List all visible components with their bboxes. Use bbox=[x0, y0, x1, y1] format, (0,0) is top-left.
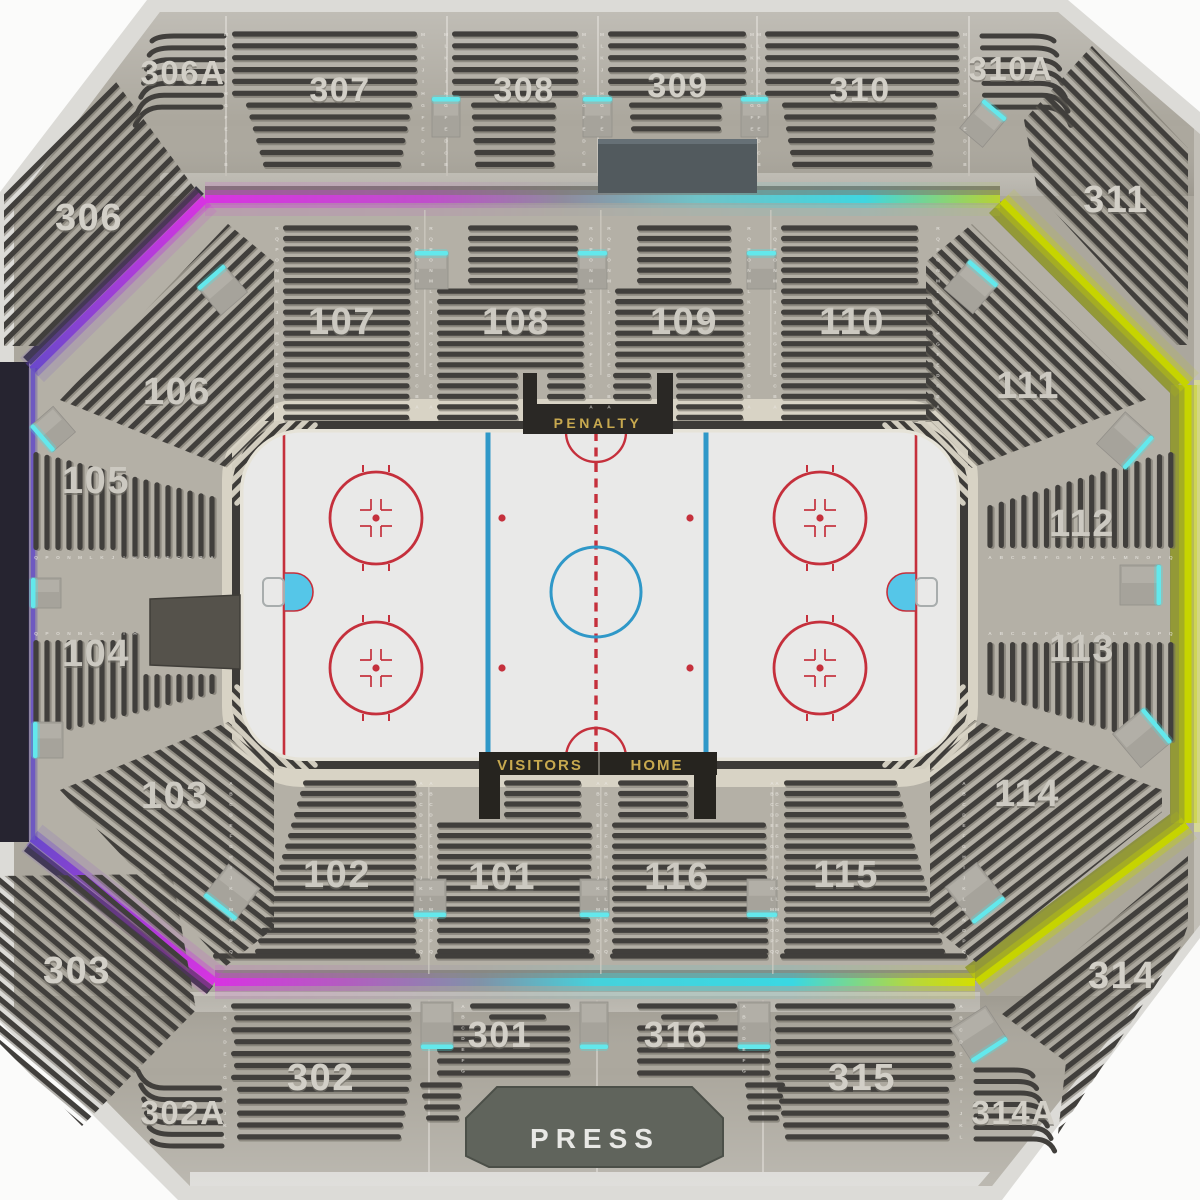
svg-text:N: N bbox=[429, 918, 433, 924]
svg-text:J: J bbox=[605, 876, 608, 882]
svg-text:C: C bbox=[775, 802, 779, 808]
svg-text:F: F bbox=[225, 115, 228, 121]
svg-text:B: B bbox=[596, 791, 600, 797]
svg-text:Q: Q bbox=[775, 949, 779, 955]
svg-text:Q: Q bbox=[429, 949, 433, 955]
svg-text:R: R bbox=[589, 226, 593, 232]
svg-text:O: O bbox=[589, 257, 593, 263]
svg-text:G: G bbox=[275, 342, 279, 348]
svg-text:G: G bbox=[600, 103, 604, 109]
svg-text:VISITORS: VISITORS bbox=[497, 757, 583, 774]
svg-text:Q: Q bbox=[589, 236, 593, 242]
svg-text:B: B bbox=[963, 162, 967, 168]
svg-text:C: C bbox=[604, 802, 608, 808]
svg-text:D: D bbox=[421, 139, 425, 145]
svg-text:L: L bbox=[751, 44, 754, 50]
svg-text:M: M bbox=[775, 907, 779, 913]
svg-text:D: D bbox=[1022, 555, 1026, 561]
svg-text:L: L bbox=[420, 897, 423, 903]
svg-text:G: G bbox=[959, 1075, 963, 1081]
svg-text:O: O bbox=[56, 555, 60, 561]
svg-text:G: G bbox=[589, 342, 593, 348]
svg-text:B: B bbox=[229, 791, 233, 797]
svg-text:105: 105 bbox=[62, 460, 130, 502]
svg-text:306: 306 bbox=[55, 197, 123, 239]
svg-text:C: C bbox=[419, 802, 423, 808]
svg-text:B: B bbox=[275, 394, 279, 400]
svg-text:O: O bbox=[747, 257, 751, 263]
svg-text:O: O bbox=[419, 928, 423, 934]
svg-text:G: G bbox=[747, 342, 751, 348]
svg-text:O: O bbox=[773, 257, 777, 263]
svg-text:315: 315 bbox=[828, 1057, 896, 1099]
svg-text:G: G bbox=[444, 103, 448, 109]
svg-text:L: L bbox=[776, 897, 779, 903]
svg-text:F: F bbox=[608, 352, 611, 358]
svg-text:J: J bbox=[748, 310, 751, 316]
svg-text:C: C bbox=[770, 802, 774, 808]
svg-text:Q: Q bbox=[607, 236, 611, 242]
svg-text:O: O bbox=[775, 928, 779, 934]
svg-text:Q: Q bbox=[604, 949, 608, 955]
svg-text:H: H bbox=[444, 91, 448, 97]
svg-text:L: L bbox=[430, 897, 433, 903]
svg-text:L: L bbox=[964, 44, 967, 50]
svg-text:D: D bbox=[604, 812, 608, 818]
svg-text:M: M bbox=[770, 907, 774, 913]
svg-text:D: D bbox=[742, 1036, 746, 1042]
svg-text:G: G bbox=[750, 103, 754, 109]
svg-text:103: 103 bbox=[141, 775, 209, 817]
svg-text:H: H bbox=[582, 91, 586, 97]
svg-text:C: C bbox=[461, 1025, 465, 1031]
svg-text:R: R bbox=[747, 226, 751, 232]
svg-text:M: M bbox=[275, 278, 279, 284]
svg-text:B: B bbox=[936, 394, 940, 400]
svg-text:C: C bbox=[742, 1025, 746, 1031]
svg-text:G: G bbox=[415, 342, 419, 348]
svg-text:L: L bbox=[230, 897, 233, 903]
svg-text:112: 112 bbox=[1049, 503, 1115, 545]
svg-text:J: J bbox=[774, 310, 777, 316]
svg-text:H: H bbox=[133, 555, 137, 561]
svg-text:B: B bbox=[742, 1015, 746, 1021]
svg-text:N: N bbox=[936, 268, 940, 274]
svg-text:D: D bbox=[223, 1040, 227, 1046]
svg-text:A: A bbox=[770, 781, 774, 787]
svg-text:Q: Q bbox=[34, 555, 38, 561]
svg-text:J: J bbox=[771, 876, 774, 882]
svg-text:113: 113 bbox=[1049, 628, 1115, 670]
svg-text:F: F bbox=[416, 352, 419, 358]
svg-text:D: D bbox=[444, 139, 448, 145]
svg-text:M: M bbox=[773, 278, 777, 284]
svg-text:H: H bbox=[773, 331, 777, 337]
svg-text:O: O bbox=[604, 928, 608, 934]
svg-text:D: D bbox=[936, 373, 940, 379]
svg-text:G: G bbox=[582, 103, 586, 109]
svg-text:B: B bbox=[770, 791, 774, 797]
svg-text:B: B bbox=[773, 394, 777, 400]
svg-text:K: K bbox=[770, 886, 774, 892]
svg-text:Q: Q bbox=[429, 236, 433, 242]
svg-text:G: G bbox=[773, 342, 777, 348]
svg-text:K: K bbox=[100, 555, 104, 561]
svg-text:109: 109 bbox=[650, 301, 718, 343]
svg-text:J: J bbox=[445, 67, 448, 73]
svg-text:311: 311 bbox=[1083, 179, 1149, 221]
svg-text:310A: 310A bbox=[969, 50, 1054, 87]
svg-text:Q: Q bbox=[747, 236, 751, 242]
svg-text:A: A bbox=[415, 405, 419, 411]
svg-text:K: K bbox=[275, 300, 279, 306]
svg-text:G: G bbox=[461, 1069, 465, 1075]
svg-text:J: J bbox=[758, 67, 761, 73]
svg-text:B: B bbox=[962, 791, 966, 797]
svg-text:K: K bbox=[936, 300, 940, 306]
svg-text:A: A bbox=[596, 781, 600, 787]
svg-text:C: C bbox=[1011, 631, 1015, 637]
svg-text:D: D bbox=[747, 373, 751, 379]
svg-text:H: H bbox=[421, 91, 425, 97]
svg-text:O: O bbox=[229, 928, 233, 934]
svg-text:307: 307 bbox=[309, 71, 370, 109]
svg-text:101: 101 bbox=[468, 856, 536, 898]
svg-text:F: F bbox=[776, 833, 779, 839]
svg-text:H: H bbox=[747, 331, 751, 337]
svg-text:N: N bbox=[429, 268, 433, 274]
svg-text:M: M bbox=[1124, 631, 1128, 637]
svg-text:J: J bbox=[751, 67, 754, 73]
svg-text:G: G bbox=[770, 844, 774, 850]
svg-text:M: M bbox=[757, 32, 761, 38]
svg-text:D: D bbox=[582, 139, 586, 145]
svg-text:R: R bbox=[936, 226, 940, 232]
svg-text:A: A bbox=[461, 1004, 465, 1010]
svg-text:H: H bbox=[429, 331, 433, 337]
svg-text:M: M bbox=[415, 278, 419, 284]
svg-text:Q: Q bbox=[773, 236, 777, 242]
svg-text:H: H bbox=[959, 1087, 963, 1093]
svg-text:R: R bbox=[415, 226, 419, 232]
svg-text:L: L bbox=[416, 289, 419, 295]
svg-text:K: K bbox=[589, 300, 593, 306]
svg-text:C: C bbox=[747, 384, 751, 390]
svg-text:G: G bbox=[421, 103, 425, 109]
svg-text:F: F bbox=[597, 833, 600, 839]
svg-text:G: G bbox=[419, 844, 423, 850]
svg-text:A: A bbox=[419, 781, 423, 787]
svg-text:Q: Q bbox=[419, 949, 423, 955]
svg-text:J: J bbox=[601, 67, 604, 73]
svg-text:114: 114 bbox=[994, 773, 1060, 815]
svg-text:J: J bbox=[597, 876, 600, 882]
svg-text:K: K bbox=[596, 886, 600, 892]
svg-text:302A: 302A bbox=[141, 1094, 226, 1131]
svg-text:L: L bbox=[758, 44, 761, 50]
svg-text:R: R bbox=[429, 226, 433, 232]
svg-text:M: M bbox=[596, 907, 600, 913]
svg-text:K: K bbox=[773, 300, 777, 306]
svg-text:K: K bbox=[962, 886, 966, 892]
svg-text:J: J bbox=[230, 876, 233, 882]
svg-text:D: D bbox=[177, 555, 181, 561]
svg-text:L: L bbox=[771, 897, 774, 903]
svg-text:R: R bbox=[607, 226, 611, 232]
svg-text:K: K bbox=[419, 886, 423, 892]
svg-text:H: H bbox=[962, 855, 966, 861]
svg-text:G: G bbox=[429, 342, 433, 348]
svg-text:L: L bbox=[963, 897, 966, 903]
svg-text:C: C bbox=[223, 1028, 227, 1034]
svg-text:G: G bbox=[604, 844, 608, 850]
svg-text:J: J bbox=[420, 876, 423, 882]
svg-text:D: D bbox=[963, 139, 967, 145]
svg-text:F: F bbox=[156, 555, 159, 561]
svg-text:B: B bbox=[582, 162, 586, 168]
svg-text:K: K bbox=[775, 886, 779, 892]
svg-text:J: J bbox=[583, 67, 586, 73]
svg-text:A: A bbox=[275, 405, 279, 411]
svg-text:K: K bbox=[421, 56, 425, 62]
svg-text:L: L bbox=[774, 289, 777, 295]
svg-text:C: C bbox=[582, 150, 586, 156]
svg-text:K: K bbox=[959, 1123, 963, 1129]
svg-text:115: 115 bbox=[813, 854, 879, 896]
svg-text:K: K bbox=[963, 56, 967, 62]
svg-text:N: N bbox=[770, 918, 774, 924]
svg-text:C: C bbox=[188, 555, 192, 561]
svg-text:C: C bbox=[421, 150, 425, 156]
svg-text:PENALTY: PENALTY bbox=[554, 415, 643, 431]
svg-text:F: F bbox=[751, 115, 754, 121]
svg-text:B: B bbox=[421, 162, 425, 168]
svg-text:G: G bbox=[429, 844, 433, 850]
svg-text:O: O bbox=[1146, 555, 1150, 561]
svg-text:C: C bbox=[596, 802, 600, 808]
svg-text:B: B bbox=[1000, 555, 1004, 561]
svg-text:J: J bbox=[1090, 555, 1093, 561]
svg-text:H: H bbox=[229, 855, 233, 861]
svg-text:H: H bbox=[415, 331, 419, 337]
svg-text:104: 104 bbox=[62, 633, 130, 675]
svg-text:L: L bbox=[225, 44, 228, 50]
svg-text:M: M bbox=[582, 32, 586, 38]
svg-text:O: O bbox=[56, 631, 60, 637]
svg-text:106: 106 bbox=[143, 371, 211, 413]
svg-text:C: C bbox=[962, 802, 966, 808]
svg-text:C: C bbox=[415, 384, 419, 390]
svg-text:F: F bbox=[774, 352, 777, 358]
svg-text:D: D bbox=[275, 373, 279, 379]
svg-text:H: H bbox=[1067, 555, 1071, 561]
svg-text:A: A bbox=[959, 1004, 963, 1010]
svg-text:N: N bbox=[773, 268, 777, 274]
svg-text:F: F bbox=[937, 352, 940, 358]
svg-text:M: M bbox=[962, 907, 966, 913]
svg-text:H: H bbox=[223, 1087, 227, 1093]
svg-text:K: K bbox=[747, 300, 751, 306]
svg-text:A: A bbox=[988, 555, 992, 561]
svg-text:K: K bbox=[757, 56, 761, 62]
svg-text:F: F bbox=[422, 115, 425, 121]
svg-text:108: 108 bbox=[482, 301, 550, 343]
svg-text:G: G bbox=[229, 844, 233, 850]
svg-text:H: H bbox=[757, 91, 761, 97]
svg-text:L: L bbox=[601, 44, 604, 50]
svg-text:L: L bbox=[748, 289, 751, 295]
svg-text:M: M bbox=[936, 278, 940, 284]
svg-text:110: 110 bbox=[819, 301, 885, 343]
svg-text:R: R bbox=[275, 226, 279, 232]
svg-text:A: A bbox=[936, 405, 940, 411]
svg-text:H: H bbox=[429, 855, 433, 861]
svg-text:F: F bbox=[963, 833, 966, 839]
svg-text:M: M bbox=[224, 32, 228, 38]
svg-text:M: M bbox=[600, 32, 604, 38]
svg-text:B: B bbox=[429, 791, 433, 797]
svg-text:F: F bbox=[224, 1063, 227, 1069]
svg-text:G: G bbox=[962, 844, 966, 850]
svg-text:C: C bbox=[429, 384, 433, 390]
svg-text:M: M bbox=[607, 278, 611, 284]
svg-text:G: G bbox=[224, 103, 228, 109]
svg-text:K: K bbox=[229, 886, 233, 892]
svg-text:G: G bbox=[223, 1075, 227, 1081]
svg-text:A: A bbox=[775, 781, 779, 787]
svg-text:M: M bbox=[963, 32, 967, 38]
svg-text:H: H bbox=[770, 855, 774, 861]
svg-text:B: B bbox=[224, 162, 228, 168]
svg-text:J: J bbox=[776, 876, 779, 882]
svg-text:C: C bbox=[429, 802, 433, 808]
svg-text:Q: Q bbox=[596, 949, 600, 955]
svg-text:M: M bbox=[444, 32, 448, 38]
svg-text:301: 301 bbox=[468, 1014, 533, 1055]
svg-text:Q: Q bbox=[229, 949, 233, 955]
svg-text:314: 314 bbox=[1088, 955, 1156, 997]
svg-text:B: B bbox=[589, 394, 593, 400]
svg-text:306A: 306A bbox=[141, 54, 226, 91]
svg-text:L: L bbox=[445, 44, 448, 50]
svg-text:H: H bbox=[600, 91, 604, 97]
svg-text:F: F bbox=[771, 833, 774, 839]
svg-text:D: D bbox=[607, 373, 611, 379]
svg-text:N: N bbox=[419, 918, 423, 924]
svg-text:F: F bbox=[462, 1058, 465, 1064]
svg-text:G: G bbox=[757, 103, 761, 109]
svg-text:C: C bbox=[275, 384, 279, 390]
svg-text:M: M bbox=[747, 278, 751, 284]
svg-text:116: 116 bbox=[644, 856, 710, 898]
svg-text:B: B bbox=[775, 791, 779, 797]
svg-text:M: M bbox=[750, 32, 754, 38]
svg-text:F: F bbox=[748, 352, 751, 358]
svg-text:N: N bbox=[747, 268, 751, 274]
svg-text:G: G bbox=[742, 1069, 746, 1075]
svg-text:C: C bbox=[1011, 555, 1015, 561]
svg-text:O: O bbox=[275, 257, 279, 263]
svg-text:C: C bbox=[963, 150, 967, 156]
svg-text:J: J bbox=[430, 310, 433, 316]
svg-text:B: B bbox=[461, 1015, 465, 1021]
svg-text:D: D bbox=[1022, 631, 1026, 637]
svg-text:A: A bbox=[962, 781, 966, 787]
svg-text:F: F bbox=[445, 115, 448, 121]
svg-text:J: J bbox=[608, 310, 611, 316]
svg-text:A: A bbox=[773, 405, 777, 411]
svg-text:H: H bbox=[589, 331, 593, 337]
svg-text:N: N bbox=[607, 268, 611, 274]
svg-text:309: 309 bbox=[647, 67, 708, 105]
svg-text:D: D bbox=[589, 373, 593, 379]
svg-text:R: R bbox=[773, 226, 777, 232]
svg-text:F: F bbox=[230, 833, 233, 839]
svg-text:D: D bbox=[429, 812, 433, 818]
svg-text:N: N bbox=[589, 268, 593, 274]
svg-text:D: D bbox=[429, 373, 433, 379]
svg-text:K: K bbox=[1101, 555, 1105, 561]
svg-text:D: D bbox=[959, 1040, 963, 1046]
svg-text:Q: Q bbox=[770, 949, 774, 955]
svg-text:N: N bbox=[229, 918, 233, 924]
svg-text:A: A bbox=[604, 781, 608, 787]
svg-text:A: A bbox=[742, 1004, 746, 1010]
svg-text:L: L bbox=[430, 289, 433, 295]
svg-text:B: B bbox=[429, 394, 433, 400]
svg-text:C: C bbox=[229, 802, 233, 808]
svg-text:O: O bbox=[607, 257, 611, 263]
svg-text:M: M bbox=[421, 32, 425, 38]
svg-text:G: G bbox=[144, 555, 148, 561]
svg-text:B: B bbox=[604, 791, 608, 797]
svg-text:N: N bbox=[1135, 555, 1139, 561]
svg-text:F: F bbox=[960, 1063, 963, 1069]
svg-text:O: O bbox=[415, 257, 419, 263]
svg-text:H: H bbox=[275, 331, 279, 337]
svg-text:L: L bbox=[597, 897, 600, 903]
svg-text:L: L bbox=[422, 44, 425, 50]
svg-text:A: A bbox=[429, 405, 433, 411]
svg-text:D: D bbox=[224, 139, 228, 145]
svg-text:J: J bbox=[963, 876, 966, 882]
svg-text:B: B bbox=[1000, 631, 1004, 637]
svg-text:L: L bbox=[590, 289, 593, 295]
svg-text:K: K bbox=[607, 300, 611, 306]
svg-text:K: K bbox=[429, 300, 433, 306]
svg-text:A: A bbox=[747, 405, 751, 411]
svg-text:K: K bbox=[604, 886, 608, 892]
svg-text:F: F bbox=[1045, 631, 1048, 637]
svg-text:107: 107 bbox=[308, 301, 376, 343]
svg-text:O: O bbox=[429, 928, 433, 934]
svg-text:G: G bbox=[936, 342, 940, 348]
svg-text:C: C bbox=[936, 384, 940, 390]
svg-text:D: D bbox=[962, 812, 966, 818]
svg-text:C: C bbox=[959, 1028, 963, 1034]
svg-text:A: A bbox=[589, 405, 593, 411]
svg-text:J: J bbox=[422, 67, 425, 73]
svg-text:A: A bbox=[223, 1004, 227, 1010]
svg-text:302: 302 bbox=[287, 1057, 355, 1099]
svg-text:C: C bbox=[589, 384, 593, 390]
svg-text:D: D bbox=[596, 812, 600, 818]
svg-text:C: C bbox=[607, 384, 611, 390]
svg-text:G: G bbox=[1056, 555, 1060, 561]
svg-text:F: F bbox=[601, 115, 604, 121]
svg-text:M: M bbox=[78, 555, 82, 561]
svg-text:M: M bbox=[419, 907, 423, 913]
